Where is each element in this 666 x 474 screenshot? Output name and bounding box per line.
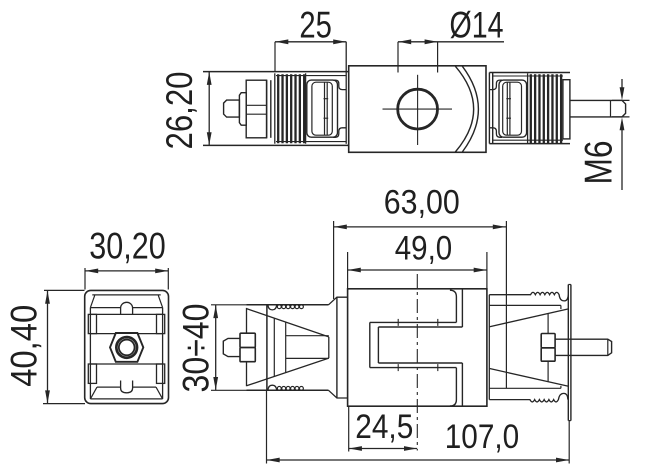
svg-text:Ø14: Ø14 (450, 4, 504, 45)
svg-text:30,20: 30,20 (89, 225, 166, 266)
svg-text:25: 25 (299, 4, 332, 45)
svg-text:30÷40: 30÷40 (176, 304, 217, 393)
svg-text:49,0: 49,0 (395, 229, 453, 267)
svg-text:24,5: 24,5 (355, 408, 413, 446)
svg-text:M6: M6 (578, 141, 621, 185)
svg-text:26,20: 26,20 (159, 72, 200, 150)
svg-text:63,00: 63,00 (384, 184, 460, 222)
svg-text:40,40: 40,40 (4, 305, 45, 387)
svg-text:107,0: 107,0 (445, 418, 520, 456)
